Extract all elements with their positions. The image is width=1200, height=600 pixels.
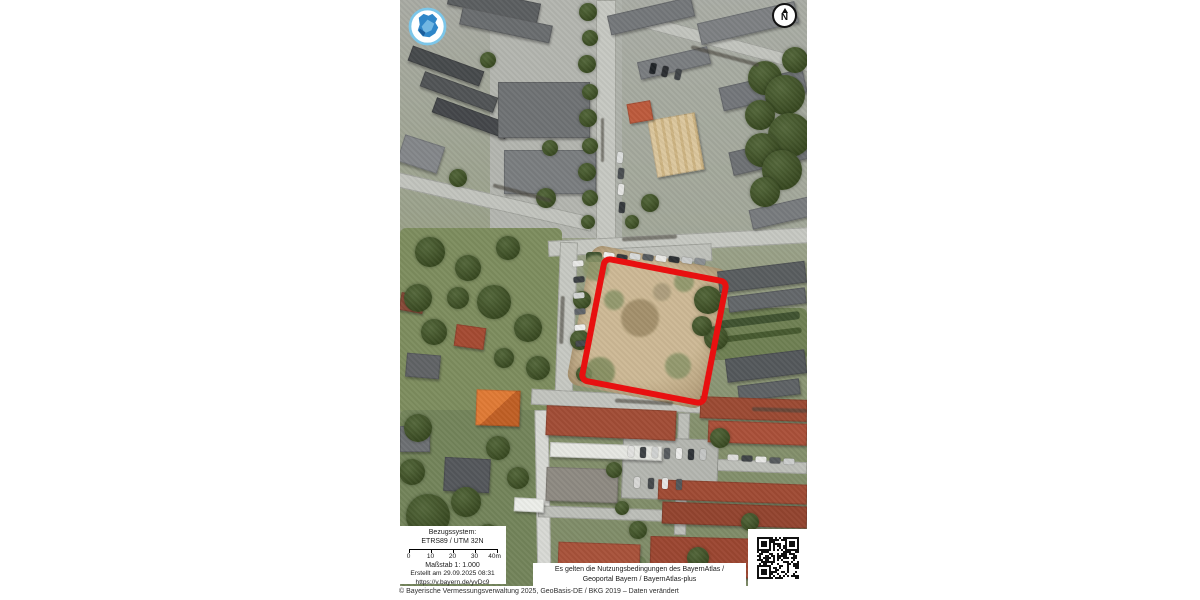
tree bbox=[582, 190, 598, 206]
tree bbox=[404, 414, 432, 442]
tree bbox=[451, 487, 481, 517]
tree bbox=[421, 319, 447, 345]
tree bbox=[526, 356, 550, 380]
car bbox=[628, 446, 634, 457]
car bbox=[727, 454, 738, 460]
car bbox=[640, 447, 646, 458]
qr-code-icon bbox=[757, 537, 799, 579]
tree bbox=[582, 138, 598, 154]
car bbox=[652, 447, 658, 458]
tree bbox=[514, 314, 542, 342]
tree bbox=[507, 467, 529, 489]
car bbox=[769, 457, 780, 463]
building bbox=[475, 389, 520, 427]
tree bbox=[494, 348, 514, 368]
street-label-smudge bbox=[601, 118, 604, 162]
north-arrow-label: N bbox=[781, 13, 788, 23]
scale-bar: 0 10 20 30 40m bbox=[409, 549, 497, 561]
tree bbox=[455, 255, 481, 281]
tree bbox=[641, 194, 659, 212]
disclaimer-line2: Geoportal Bayern / BayernAtlas-plus bbox=[533, 575, 746, 585]
tree bbox=[625, 215, 639, 229]
car bbox=[574, 324, 585, 331]
scale-ratio: Maßstab 1: 1.000 bbox=[399, 562, 506, 571]
tree bbox=[750, 177, 780, 207]
tree bbox=[447, 287, 469, 309]
car bbox=[619, 202, 626, 213]
scale-tick-label: 30 bbox=[471, 553, 478, 560]
tree bbox=[578, 163, 596, 181]
map-reference-box: Bezugssystem: ETRS89 / UTM 32N 0 10 20 3… bbox=[399, 526, 506, 584]
tree bbox=[542, 140, 558, 156]
tree bbox=[578, 55, 596, 73]
scale-tick-label: 20 bbox=[449, 553, 456, 560]
tree bbox=[710, 428, 730, 448]
car bbox=[688, 449, 694, 460]
created-timestamp: Erstellt am 29.09.2025 08:31 bbox=[399, 570, 506, 579]
car bbox=[664, 448, 670, 459]
copyright-line: © Bayerische Vermessungsverwaltung 2025,… bbox=[399, 588, 679, 595]
scale-tick-label: 0 bbox=[407, 553, 411, 560]
tree bbox=[486, 436, 510, 460]
building bbox=[405, 353, 441, 380]
ref-system-value: ETRS89 / UTM 32N bbox=[399, 538, 506, 547]
car bbox=[676, 479, 682, 490]
tree bbox=[579, 109, 597, 127]
tree bbox=[782, 47, 807, 73]
tree bbox=[582, 84, 598, 100]
car bbox=[618, 184, 625, 195]
road bbox=[596, 0, 616, 240]
tree bbox=[581, 215, 595, 229]
scale-tick bbox=[431, 549, 432, 553]
scale-tick-label: 10 bbox=[427, 553, 434, 560]
car bbox=[741, 455, 752, 461]
tree bbox=[629, 521, 647, 539]
ref-system-label: Bezugssystem: bbox=[399, 529, 506, 538]
building bbox=[545, 405, 676, 441]
north-arrow-icon: N bbox=[772, 3, 797, 28]
tree bbox=[404, 284, 432, 312]
tree bbox=[415, 237, 445, 267]
aerial-map: N bbox=[400, 0, 807, 586]
tree bbox=[449, 169, 467, 187]
short-url: https://v.bayern.de/yvDc9 bbox=[399, 579, 506, 588]
disclaimer-line1: Es gelten die Nutzungsbedingungen des Ba… bbox=[533, 565, 746, 575]
tree bbox=[606, 462, 622, 478]
tree bbox=[477, 285, 511, 319]
car bbox=[634, 477, 640, 488]
car bbox=[573, 292, 584, 299]
car bbox=[783, 458, 794, 464]
car bbox=[648, 478, 654, 489]
tree bbox=[582, 30, 598, 46]
scale-tick bbox=[475, 549, 476, 553]
car bbox=[676, 448, 682, 459]
car bbox=[662, 478, 668, 489]
building bbox=[626, 100, 653, 124]
tree bbox=[579, 3, 597, 21]
scale-tick bbox=[409, 549, 410, 553]
tree bbox=[400, 459, 425, 485]
building bbox=[647, 112, 704, 177]
car bbox=[574, 308, 585, 315]
building bbox=[454, 324, 487, 350]
bayernatlas-logo-icon bbox=[408, 7, 447, 46]
car bbox=[572, 260, 583, 267]
car bbox=[700, 449, 706, 460]
scale-tick bbox=[453, 549, 454, 553]
scale-tick-label: 40m bbox=[488, 553, 501, 560]
car bbox=[618, 168, 625, 179]
qr-code-box bbox=[748, 529, 807, 586]
terms-disclaimer-box: Es gelten die Nutzungsbedingungen des Ba… bbox=[533, 563, 746, 586]
tree bbox=[615, 501, 629, 515]
tree bbox=[480, 52, 496, 68]
tree bbox=[496, 236, 520, 260]
car bbox=[573, 276, 584, 283]
building bbox=[498, 82, 590, 138]
car bbox=[617, 152, 624, 163]
car bbox=[755, 456, 766, 462]
building bbox=[514, 497, 545, 513]
parcel-outline bbox=[578, 255, 730, 407]
scale-tick bbox=[497, 549, 498, 553]
building bbox=[400, 134, 445, 174]
